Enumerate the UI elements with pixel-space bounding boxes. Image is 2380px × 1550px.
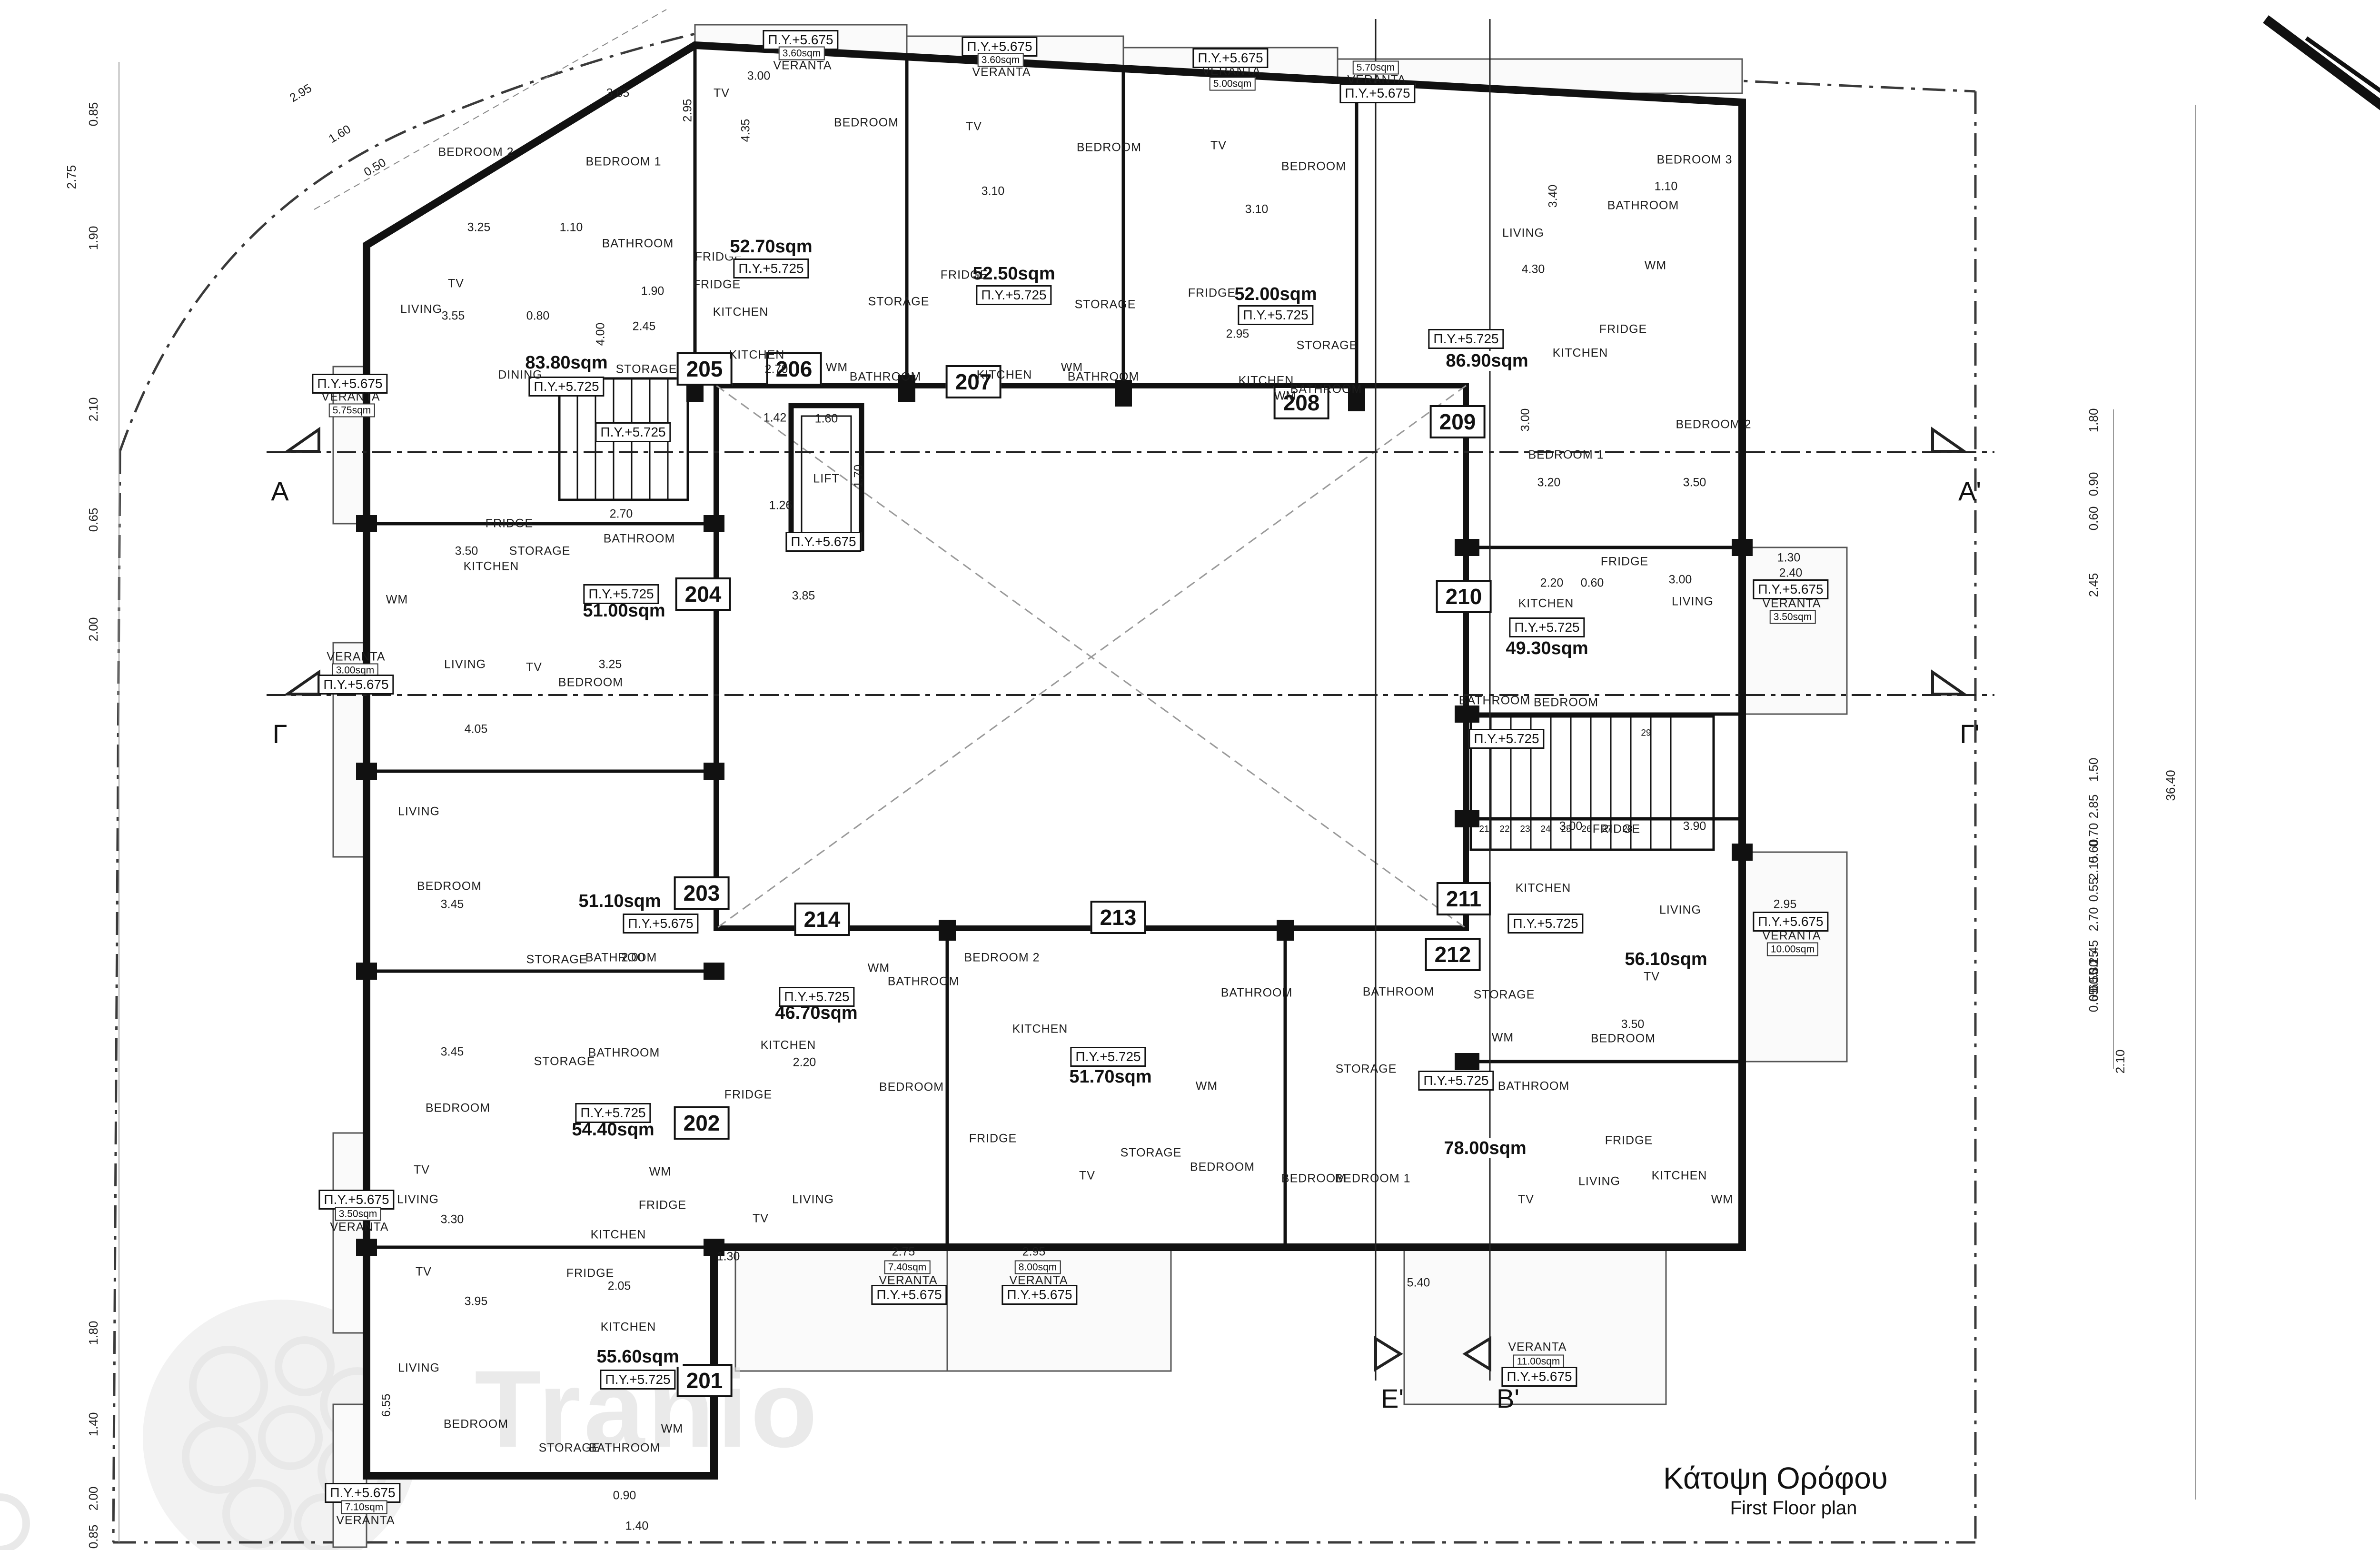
level-badge: Π.Y.+5.725 <box>583 584 659 604</box>
veranda-name-label: VERANTA <box>336 1515 395 1527</box>
apartment-area: 51.10sqm <box>575 891 664 911</box>
dimension-strip-value: 2.00 <box>87 1487 99 1511</box>
level-badge: Π.Y.+5.675 <box>623 914 698 934</box>
room-label: STORAGE <box>534 1056 595 1068</box>
dimension-strip-value: 2.70 <box>2087 907 2100 932</box>
room-label: BEDROOM <box>558 677 623 689</box>
room-label: KITCHEN <box>1652 1170 1707 1182</box>
room-label: WM <box>1711 1194 1733 1206</box>
room-label: BATHROOM <box>850 371 922 383</box>
dimension-strip-value: 0.85 <box>87 1525 99 1549</box>
room-label: KITCHEN <box>761 1040 816 1052</box>
room-label: FRIDGE <box>724 1089 772 1101</box>
veranda-name-label: VERANTA <box>972 67 1031 79</box>
dimension-label: 3.20 <box>1537 477 1561 489</box>
dimension-label: 1.60 <box>815 413 838 425</box>
room-label: WM <box>826 362 848 374</box>
room-label: BEDROOM <box>1534 697 1598 709</box>
dimension-strip-value: 2.00 <box>87 617 99 642</box>
room-label: KITCHEN <box>591 1229 646 1241</box>
room-label: WM <box>1196 1081 1218 1093</box>
veranda-name-label: VERANTA <box>1508 1341 1567 1353</box>
apartment-area: 78.00sqm <box>1440 1138 1530 1158</box>
dimension-strip-value: 1.90 <box>87 226 99 250</box>
room-label: WM <box>1061 362 1083 374</box>
apartment-number: 214 <box>794 903 850 936</box>
level-badge: Π.Y.+5.725 <box>1418 1071 1494 1091</box>
dimension-label: 3.90 <box>1683 821 1706 833</box>
room-label: LIVING <box>398 806 440 818</box>
dimension-label: 1.10 <box>560 222 583 234</box>
section-marker-label: Γ' <box>1960 721 1980 747</box>
room-label: LIVING <box>1659 904 1701 916</box>
veranda-area-label: 5.70sqm <box>1353 61 1399 75</box>
lift-label: LIFT <box>813 473 839 485</box>
room-label: BEDROOM 2 <box>438 147 514 159</box>
dimension-label: 3.00 <box>1520 408 1532 432</box>
dimension-label: 3.50 <box>1683 477 1706 489</box>
stair-step-number: 21 <box>1479 825 1489 834</box>
room-label: WM <box>661 1423 683 1435</box>
dimension-label: 1.60 <box>327 123 353 145</box>
dimension-label: 6.55 <box>381 1394 393 1417</box>
apartment-area: 55.60sqm <box>593 1347 683 1367</box>
room-label: STORAGE <box>1075 299 1136 311</box>
dimension-strip-value: 2.10 <box>87 397 99 422</box>
room-label: TV <box>714 88 730 99</box>
dimension-strip-value: 1.80 <box>87 1321 99 1345</box>
room-label: LIVING <box>400 304 442 316</box>
dimension-label: 3.45 <box>441 899 464 911</box>
level-badge: Π.Y.+5.725 <box>1428 329 1504 349</box>
veranda-name-label: VERANTA <box>1202 66 1260 78</box>
apartment-area: 49.30sqm <box>1502 638 1592 658</box>
stair-step-number: 27 <box>1602 825 1612 834</box>
apartment-number: 203 <box>674 876 730 910</box>
room-label: STORAGE <box>1121 1147 1182 1159</box>
stair-step-number: 28 <box>1622 825 1632 834</box>
dimension-label: 2.95 <box>1226 328 1249 340</box>
dimension-strip-value: 2.15 <box>2087 856 2100 880</box>
room-label: BATHROOM <box>589 1442 661 1454</box>
level-badge: Π.Y.+5.725 <box>1468 729 1544 749</box>
level-badge: Π.Y.+5.675 <box>785 532 861 552</box>
dimension-label: 3.25 <box>599 659 622 671</box>
veranda-name-label: VERANTA <box>327 651 385 663</box>
room-label: KITCHEN <box>464 561 519 573</box>
dimension-label: 2.95 <box>288 82 314 104</box>
apartment-number: 205 <box>677 352 733 386</box>
room-label: BATHROOM <box>1221 987 1293 999</box>
dimension-label: 2.40 <box>1779 567 1803 579</box>
room-label: LIVING <box>792 1194 834 1206</box>
dimension-label: 1.42 <box>764 412 787 424</box>
room-label: LIVING <box>444 659 486 671</box>
dimension-label: 0.90 <box>613 1490 636 1502</box>
dimension-label: 3.10 <box>1245 204 1269 216</box>
room-label: LIVING <box>398 1362 440 1374</box>
veranda-area-label: 7.10sqm <box>341 1500 387 1514</box>
dimension-label: 2.05 <box>608 1281 631 1292</box>
dimension-total: 36.40 <box>2164 770 2177 801</box>
dimension-strip-value: 2.75 <box>65 165 78 189</box>
level-badge: Π.Y.+5.725 <box>976 285 1051 305</box>
dimension-label: 3.65 <box>606 88 630 99</box>
apartment-number: 201 <box>677 1364 733 1397</box>
level-badge: Π.Y.+5.725 <box>779 987 854 1007</box>
room-label: BEDROOM <box>1190 1162 1255 1173</box>
dimension-label: 2.20 <box>793 1057 816 1069</box>
dimension-label: 1.70 <box>853 465 865 488</box>
apartment-number: 209 <box>1430 405 1486 438</box>
room-label: BATHROOM <box>1290 384 1362 396</box>
room-label: BATHROOM <box>888 976 960 988</box>
room-label: TV <box>416 1266 432 1278</box>
room-label: TV <box>414 1164 430 1176</box>
veranda-area-label: 10.00sqm <box>1767 943 1818 956</box>
room-label: DINING <box>498 369 543 381</box>
room-label: TV <box>448 278 464 290</box>
room-label: STORAGE <box>509 546 571 557</box>
room-label: WM <box>1492 1032 1514 1044</box>
room-label: STORAGE <box>1297 340 1358 352</box>
dimension-label: 5.40 <box>1407 1277 1430 1289</box>
sheet-title-greek: Κάτοψη Ορόφου <box>1663 1463 1888 1493</box>
room-label: FRIDGE <box>1188 288 1236 299</box>
veranda-area-label: 5.75sqm <box>329 404 375 417</box>
room-label: BATHROOM <box>1498 1081 1570 1093</box>
room-label: LIVING <box>1672 596 1714 608</box>
dimension-label: 2.70 <box>765 364 788 376</box>
dimension-label: 2.75 <box>892 1246 915 1258</box>
dimension-label: 2.00 <box>622 952 645 964</box>
veranda-level-label: Π.Y.+5.675 <box>318 675 394 695</box>
room-label: STORAGE <box>1474 989 1535 1001</box>
level-badge: Π.Y.+5.725 <box>1070 1047 1146 1067</box>
level-badge: Π.Y.+5.725 <box>1507 914 1583 934</box>
veranda-level-label: Π.Y.+5.675 <box>871 1285 947 1305</box>
veranda-area-label: 5.00sqm <box>1210 77 1256 91</box>
room-label: BEDROOM <box>834 117 899 129</box>
room-label: LIVING <box>1578 1176 1620 1188</box>
room-label: KITCHEN <box>1518 598 1574 610</box>
room-label: FRIDGE <box>1593 824 1640 835</box>
section-marker-label: A' <box>1958 478 1981 505</box>
dimension-label: 1.40 <box>625 1520 649 1532</box>
room-label: BEDROOM <box>417 881 482 893</box>
room-label: BATHROOM <box>588 1047 660 1059</box>
room-label: FRIDGE <box>693 279 741 291</box>
level-badge: Π.Y.+5.725 <box>1238 305 1313 325</box>
dimension-strip-value: 1.80 <box>2087 408 2100 433</box>
room-label: FRIDGE <box>941 269 988 281</box>
veranda-area-label: 3.50sqm <box>1770 610 1816 624</box>
apartment-number: 210 <box>1436 580 1492 613</box>
room-label: KITCHEN <box>729 349 785 361</box>
level-badge: Π.Y.+5.725 <box>1509 617 1585 637</box>
room-label: KITCHEN <box>1516 883 1571 894</box>
stair-step-number: 29 <box>1641 729 1651 738</box>
room-label: FRIDGE <box>566 1268 614 1280</box>
dimension-label: 4.35 <box>740 119 752 142</box>
level-badge: Π.Y.+5.725 <box>595 422 671 442</box>
apartment-area: 52.00sqm <box>1230 284 1320 304</box>
room-label: LIVING <box>397 1194 439 1206</box>
room-label: LIVING <box>1502 228 1544 239</box>
dimension-label: 3.95 <box>465 1296 488 1308</box>
stair-step-number: 22 <box>1499 825 1509 834</box>
room-label: BEDROOM 3 <box>1656 154 1732 166</box>
dimension-label: 0.60 <box>1581 577 1604 589</box>
dimension-label: 2.70 <box>610 508 633 520</box>
dimension-label: 3.85 <box>792 590 815 602</box>
veranda-level-label: Π.Y.+5.675 <box>1002 1285 1077 1305</box>
room-label: TV <box>1210 140 1227 152</box>
dimension-strip-value: 2.85 <box>2087 795 2100 819</box>
apartment-number: 211 <box>1437 882 1491 915</box>
dimension-label: 3.40 <box>1547 185 1559 208</box>
stair-step-number: 23 <box>1520 825 1530 834</box>
veranda-level-label: Π.Y.+5.675 <box>1339 83 1415 103</box>
room-label: TV <box>526 662 542 674</box>
apartment-area: 52.70sqm <box>726 237 816 257</box>
room-label: TV <box>1079 1170 1095 1182</box>
room-label: BATHROOM <box>1607 200 1679 212</box>
section-marker-label: B' <box>1497 1385 1519 1412</box>
dimension-label: 0.80 <box>526 310 550 322</box>
room-label: TV <box>1644 971 1660 983</box>
dimension-label: 4.05 <box>465 724 488 735</box>
room-label: BEDROOM <box>1281 161 1346 173</box>
room-label: STORAGE <box>1336 1063 1397 1075</box>
dimension-label: 3.45 <box>441 1046 464 1058</box>
veranda-area-label: 3.60sqm <box>978 53 1024 67</box>
room-label: BATHROOM <box>1459 695 1531 707</box>
room-label: FRIDGE <box>1605 1135 1653 1147</box>
dimension-label: 2.95 <box>1774 899 1797 911</box>
veranda-name-label: VERANTA <box>1762 930 1821 942</box>
section-marker-label: A <box>271 478 288 505</box>
room-label: TV <box>753 1213 769 1225</box>
dimension-label: 3.10 <box>982 186 1005 198</box>
apartment-number: 202 <box>674 1106 730 1140</box>
dimension-strip-value: 1.50 <box>2087 758 2100 782</box>
veranda-area-label: 3.50sqm <box>335 1207 381 1221</box>
dimension-strip-value: 0.90 <box>2087 472 2100 497</box>
room-label: FRIDGE <box>1601 556 1648 568</box>
room-label: BATHROOM <box>604 533 675 545</box>
dimension-label: 2.95 <box>682 99 694 122</box>
dimension-label: 1.10 <box>1655 181 1678 193</box>
dimension-label: 2.45 <box>633 321 656 333</box>
dimension-label: 2.20 <box>1540 577 1564 589</box>
section-marker-label: E' <box>1381 1385 1404 1412</box>
dimension-label: 1.90 <box>641 286 664 298</box>
dimension-label: 1.30 <box>717 1251 740 1263</box>
dimension-strip-value: 1.40 <box>87 1412 99 1437</box>
room-label: KITCHEN <box>1012 1023 1068 1035</box>
room-label: FRIDGE <box>1599 324 1647 336</box>
apartment-number: 204 <box>675 577 731 611</box>
level-badge: Π.Y.+5.725 <box>575 1103 651 1123</box>
dimension-label: 1.30 <box>1777 552 1801 564</box>
dimension-label: 3.25 <box>467 222 491 234</box>
room-label: TV <box>966 121 982 133</box>
section-marker-label: Γ <box>273 721 288 747</box>
floor-plan-sheet: Κάτοψη Ορόφου First Floor plan Tranio 20… <box>0 0 2380 1550</box>
veranda-area-label: 8.00sqm <box>1015 1261 1061 1274</box>
room-label: BEDROOM 1 <box>1528 449 1604 461</box>
dimension-strip-value: 0.65 <box>87 508 99 532</box>
apartment-number: 213 <box>1091 901 1146 934</box>
room-label: BEDROOM 2 <box>964 952 1040 964</box>
room-label: STORAGE <box>868 296 930 308</box>
dimension-label: 3.50 <box>455 546 478 557</box>
room-label: BEDROOM 1 <box>585 156 661 168</box>
room-label: BATHROOM <box>1363 986 1435 998</box>
room-label: WM <box>1274 390 1296 402</box>
room-label: KITCHEN <box>1553 348 1608 359</box>
apartment-area: 86.90sqm <box>1442 351 1532 371</box>
apartment-number: 212 <box>1425 938 1481 971</box>
room-label: BEDROOM <box>1077 142 1141 154</box>
room-label: WM <box>386 594 408 606</box>
room-label: KITCHEN <box>713 307 769 318</box>
dimension-strip-value: 0.65 <box>2087 988 2100 1013</box>
level-badge: Π.Y.+5.725 <box>733 258 809 278</box>
dimension-strip-value: 0.55 <box>2087 878 2100 902</box>
room-label: KITCHEN <box>1239 375 1294 387</box>
plan-labels: Κάτοψη Ορόφου First Floor plan Tranio 20… <box>0 0 2380 1550</box>
room-label: BEDROOM <box>1591 1033 1656 1045</box>
sheet-title-english: First Floor plan <box>1730 1499 1857 1518</box>
dimension-label: 4.30 <box>1522 264 1545 276</box>
stair-step-number: 26 <box>1581 825 1591 834</box>
room-label: BATHROOM <box>602 238 674 250</box>
room-label: FRIDGE <box>639 1200 686 1212</box>
apartment-area: 56.10sqm <box>1621 949 1711 969</box>
room-label: WM <box>649 1166 671 1178</box>
dimension-label: 3.30 <box>441 1214 464 1226</box>
veranda-name-label: VERANTA <box>773 60 832 72</box>
veranda-area-label: 7.40sqm <box>884 1261 931 1274</box>
room-label: FRIDGE <box>486 518 533 530</box>
room-label: BEDROOM 1 <box>1335 1173 1410 1185</box>
room-label: STORAGE <box>616 364 677 376</box>
dimension-strip-value: 0.85 <box>87 102 99 127</box>
stair-step-number: 24 <box>1540 825 1550 834</box>
level-badge: Π.Y.+5.725 <box>600 1370 675 1390</box>
dimension-label: 2.95 <box>1022 1246 1046 1258</box>
room-label: BEDROOM <box>444 1419 508 1431</box>
room-label: WM <box>1645 260 1666 272</box>
apartment-area: 51.70sqm <box>1065 1067 1155 1087</box>
dimension-label: 3.00 <box>747 70 771 82</box>
dimension-label: 1.26 <box>769 500 793 512</box>
veranda-name-label: VERANTA <box>330 1222 388 1233</box>
room-label: KITCHEN <box>977 369 1032 381</box>
dimension-label: 4.00 <box>595 323 607 346</box>
room-label: TV <box>1518 1194 1534 1206</box>
room-label: BEDROOM 2 <box>1676 419 1751 431</box>
dimension-strip-value: 0.60 <box>2087 507 2100 531</box>
dimension-strip-value: 2.45 <box>2087 573 2100 597</box>
room-label: WM <box>868 963 890 974</box>
veranda-name-label: VERANTA <box>1762 598 1821 610</box>
room-label: FRIDGE <box>969 1133 1017 1145</box>
dimension-label: 3.50 <box>1621 1019 1645 1031</box>
dimension-label: 3.55 <box>442 310 465 322</box>
dimension-strip-value: 2.10 <box>2114 1050 2126 1074</box>
dimension-label: 0.50 <box>362 157 388 179</box>
veranda-area-label: 3.60sqm <box>779 47 825 60</box>
veranda-name-label: VERANTA <box>321 391 380 403</box>
room-label: BEDROOM <box>879 1082 944 1093</box>
dimension-label: 3.00 <box>1669 574 1692 586</box>
room-label: STORAGE <box>526 954 588 966</box>
room-label: BEDROOM <box>426 1103 490 1114</box>
dimension-label: 3.00 <box>1559 821 1583 833</box>
room-label: KITCHEN <box>601 1321 656 1333</box>
